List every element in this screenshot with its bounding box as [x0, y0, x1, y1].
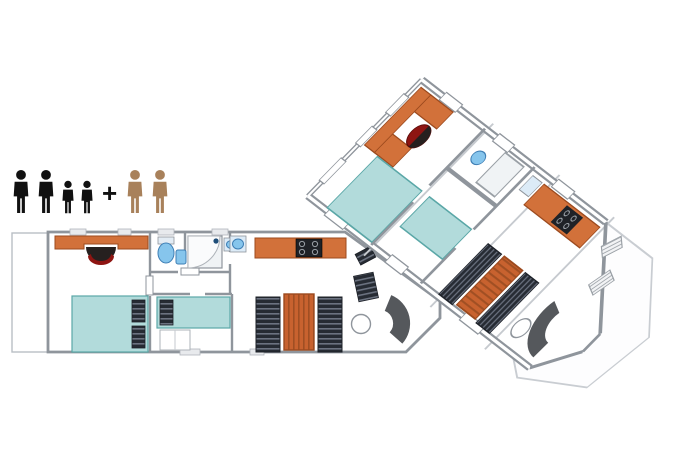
plans-canvas	[0, 0, 675, 450]
adult-person-icon	[149, 169, 171, 214]
floorplan-illustration: +	[0, 0, 675, 450]
adult-person-icon	[35, 169, 57, 214]
capacity-extra-group	[124, 169, 171, 214]
child-person-icon	[60, 180, 76, 214]
child-person-icon	[79, 180, 95, 214]
capacity-pictograms: +	[10, 166, 171, 214]
pillow	[160, 300, 173, 325]
bench-seat-right	[318, 297, 342, 352]
washbasin	[176, 250, 186, 264]
round-table	[352, 315, 371, 334]
adult-person-icon	[10, 169, 32, 214]
capacity-main-group	[10, 169, 95, 214]
bench-seat-left	[256, 297, 280, 352]
pillow	[132, 326, 145, 348]
toilet	[158, 243, 174, 263]
hob	[296, 239, 322, 257]
plus-sign: +	[102, 180, 117, 206]
dining-area-2d	[256, 294, 342, 352]
pillow	[132, 300, 145, 322]
adult-person-icon	[124, 169, 146, 214]
entry-deck	[12, 233, 48, 352]
shower-head	[213, 238, 218, 243]
dining-table	[284, 294, 314, 350]
